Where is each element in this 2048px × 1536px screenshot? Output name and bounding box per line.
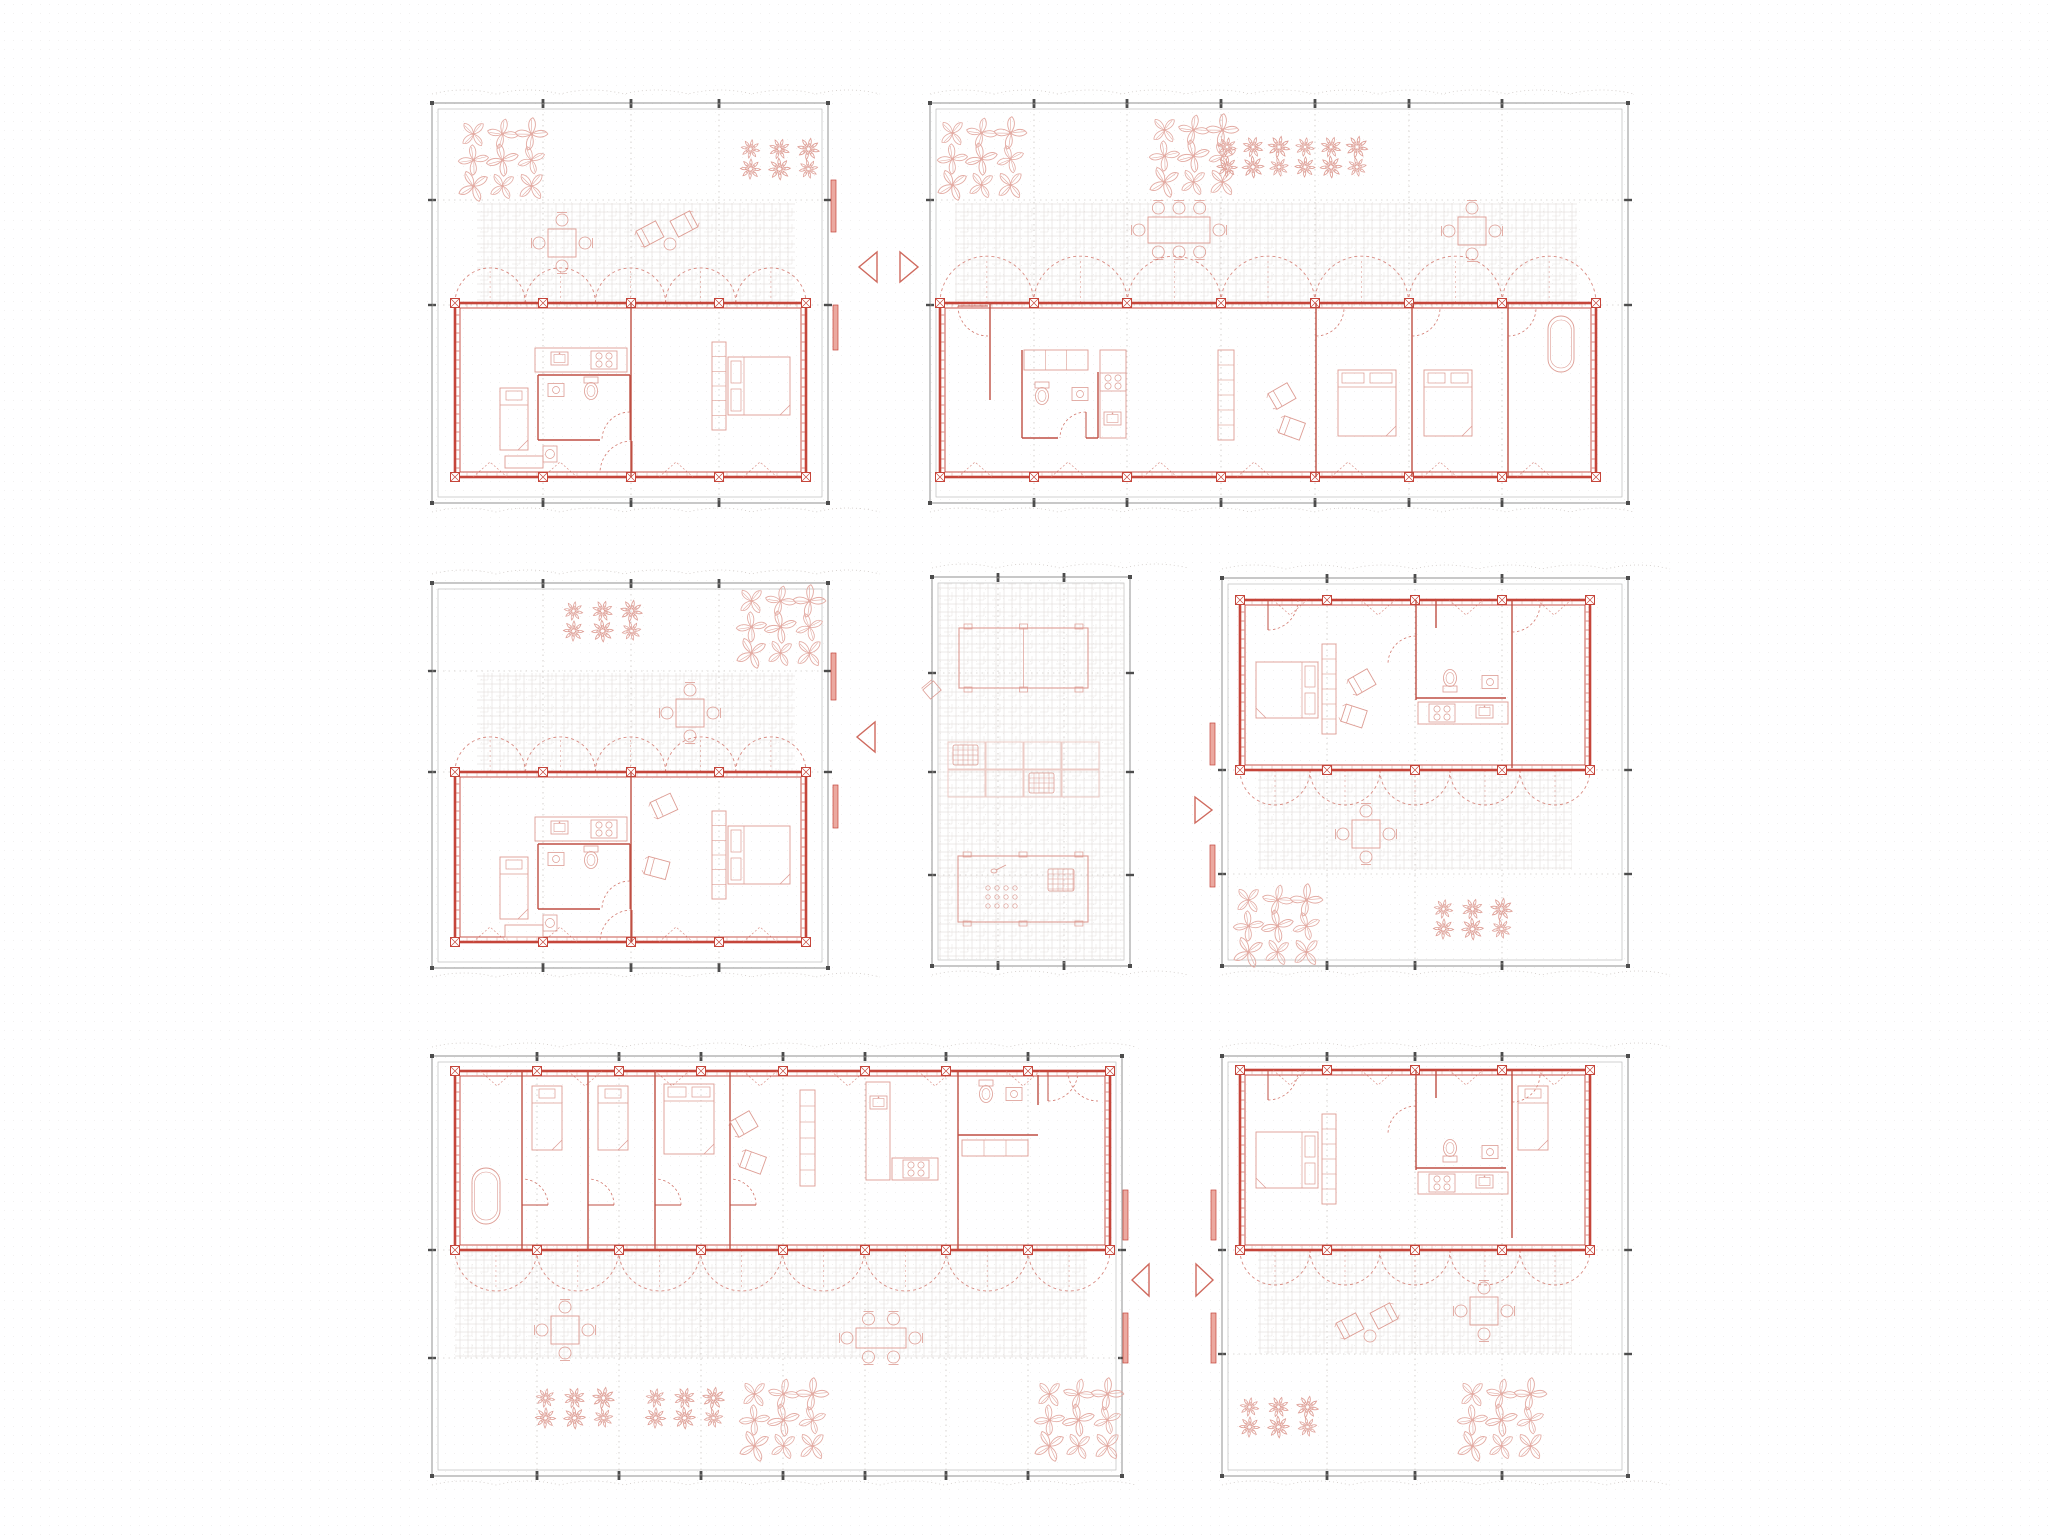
section-cut-bar: [1211, 1190, 1216, 1240]
section-arrow-icon: [1195, 797, 1212, 823]
courtyard: [921, 564, 1188, 975]
section-cut-bar: [1123, 1190, 1128, 1240]
site-plan: [0, 0, 2048, 1536]
plots-layer: [428, 90, 1670, 1485]
section-arrow-icon: [1132, 1264, 1149, 1296]
section-cut-bar: [1210, 845, 1215, 887]
plot-mid-right: [1218, 565, 1670, 975]
section-cut-bar: [1211, 1313, 1216, 1363]
section-cut-bar: [1123, 1313, 1128, 1363]
plot-top-left: [428, 90, 880, 512]
section-cut-bar: [833, 785, 838, 828]
plot-top-right: [926, 90, 1634, 512]
section-arrow-icon: [857, 722, 875, 752]
section-arrow-icon: [1196, 1264, 1213, 1296]
plot-bottom-right: [1218, 1043, 1670, 1485]
section-cut-bar: [833, 305, 838, 350]
plot-bottom-left: [428, 1043, 1136, 1485]
section-arrow-icon: [859, 252, 877, 282]
section-cut-bar: [831, 180, 836, 232]
floor-plan-drawing: [0, 0, 2048, 1536]
plot-mid-left: [428, 570, 880, 977]
section-cut-bar: [831, 653, 836, 700]
section-arrow-icon: [900, 252, 918, 282]
section-cut-bar: [1210, 723, 1215, 765]
